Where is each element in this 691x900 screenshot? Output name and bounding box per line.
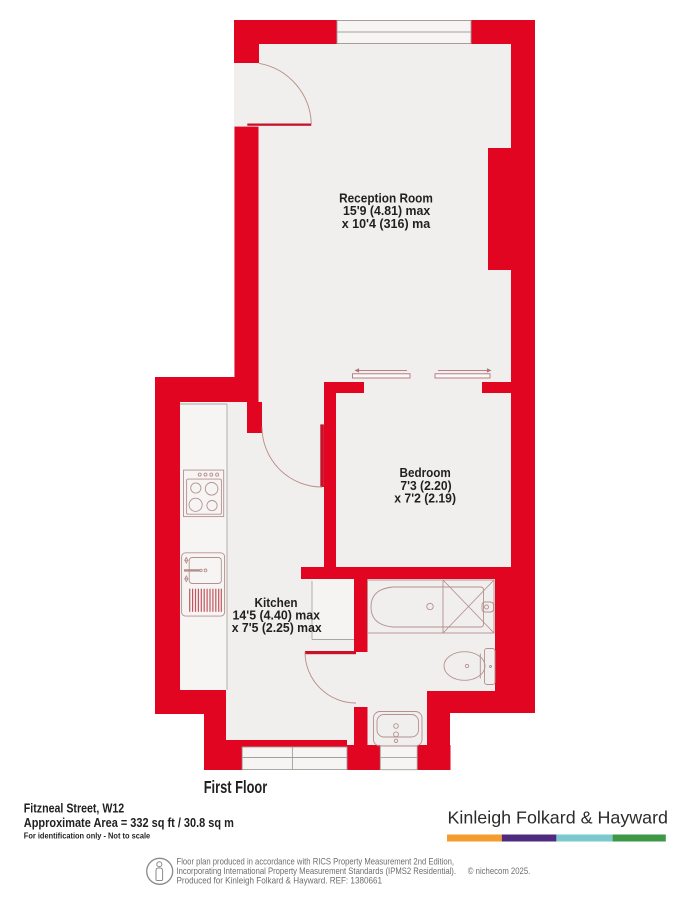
svg-text:For identification only - Not: For identification only - Not to scale (24, 831, 151, 841)
svg-text:Fitzneal Street, W12: Fitzneal Street, W12 (24, 800, 124, 815)
svg-text:Approximate Area = 332 sq ft /: Approximate Area = 332 sq ft / 30.8 sq m (24, 815, 234, 830)
svg-text:x 7'2 (2.19): x 7'2 (2.19) (394, 490, 456, 505)
svg-text:Kinleigh Folkard & Hayward: Kinleigh Folkard & Hayward (448, 807, 669, 827)
svg-text:© nichecom 2025.: © nichecom 2025. (468, 866, 531, 876)
svg-text:x 7'5 (2.25) max: x 7'5 (2.25) max (232, 620, 323, 635)
svg-text:x 10'4 (316) ma: x 10'4 (316) ma (342, 216, 431, 231)
svg-text:First Floor: First Floor (204, 777, 268, 797)
svg-text:Produced for Kinleigh Folkard: Produced for Kinleigh Folkard & Hayward.… (177, 875, 383, 885)
